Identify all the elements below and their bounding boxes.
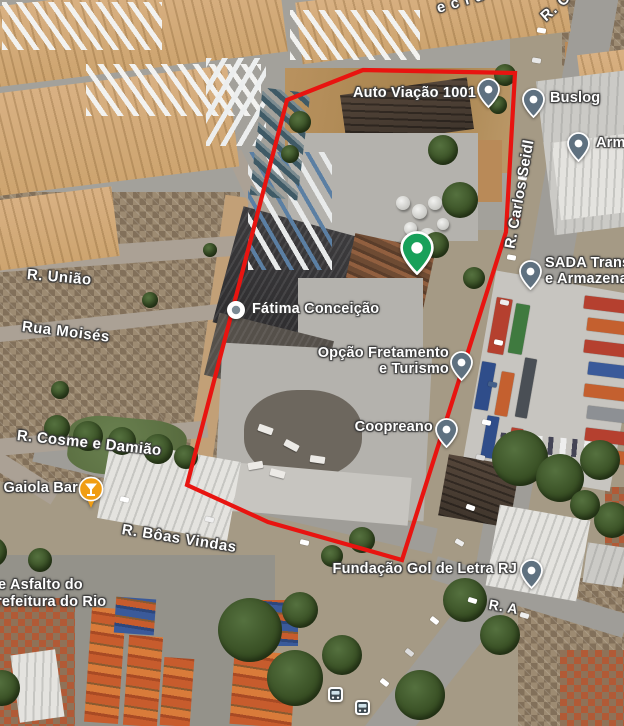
fundacao-gol-de-letra-marker[interactable] — [520, 559, 543, 594]
auto-viacao-1001-label[interactable]: Auto Viação 1001 — [353, 86, 476, 102]
poi-label-line1: Opção Fretamento — [318, 346, 449, 362]
gaiola-bar-label[interactable]: Gaiola Bar — [3, 481, 78, 497]
fundacao-gol-de-letra-label[interactable]: Fundação Gol de Letra RJ — [333, 562, 517, 578]
auto-viacao-1001-marker[interactable] — [477, 78, 500, 113]
armazem-marker[interactable] — [567, 132, 590, 167]
poi-label-line1: Coopreano — [355, 420, 433, 436]
poi-label-line1: Buslog — [550, 91, 600, 107]
poi-label-line1: Gaiola Bar — [3, 481, 78, 497]
poi-label-line1: SADA Transp — [545, 256, 624, 272]
opcao-fretamento-label[interactable]: Opção Fretamentoe Turismo — [318, 346, 449, 377]
armazem-label[interactable]: Arma — [596, 136, 624, 152]
poi-label-line1: Fundação Gol de Letra RJ — [333, 562, 517, 578]
poi-label-line1: Arma — [596, 136, 624, 152]
poi-label-line1: Auto Viação 1001 — [353, 86, 476, 102]
opcao-fretamento-marker[interactable] — [450, 351, 473, 386]
gaiola-bar-marker[interactable] — [78, 476, 104, 514]
green-place-marker[interactable] — [400, 231, 434, 280]
coopreano-label[interactable]: Coopreano — [355, 420, 433, 436]
poi-label-line2: e Turismo — [318, 362, 449, 378]
buslog-label[interactable]: Buslog — [550, 91, 600, 107]
coopreano-marker[interactable] — [435, 418, 458, 453]
satellite-map[interactable]: ecidaR. CR. Carlos SeidlR. UniãoRua Mois… — [0, 0, 624, 726]
sada-transportes-marker[interactable] — [519, 260, 542, 295]
bus-stop-1-transit-icon[interactable] — [328, 687, 343, 707]
poi-label-line2: e Armazenag — [545, 272, 624, 288]
poi-label-line1: Fátima Conceição — [252, 302, 379, 318]
sada-transportes-label[interactable]: SADA Transpe Armazenag — [545, 256, 624, 287]
fatima-conceicao-marker[interactable] — [226, 300, 246, 325]
bus-stop-2-transit-icon[interactable] — [355, 700, 370, 720]
buslog-marker[interactable] — [522, 88, 545, 123]
fatima-conceicao-label[interactable]: Fátima Conceição — [252, 302, 379, 318]
markers-layer: Auto Viação 1001BuslogArmaSADA Transpe A… — [0, 0, 624, 726]
